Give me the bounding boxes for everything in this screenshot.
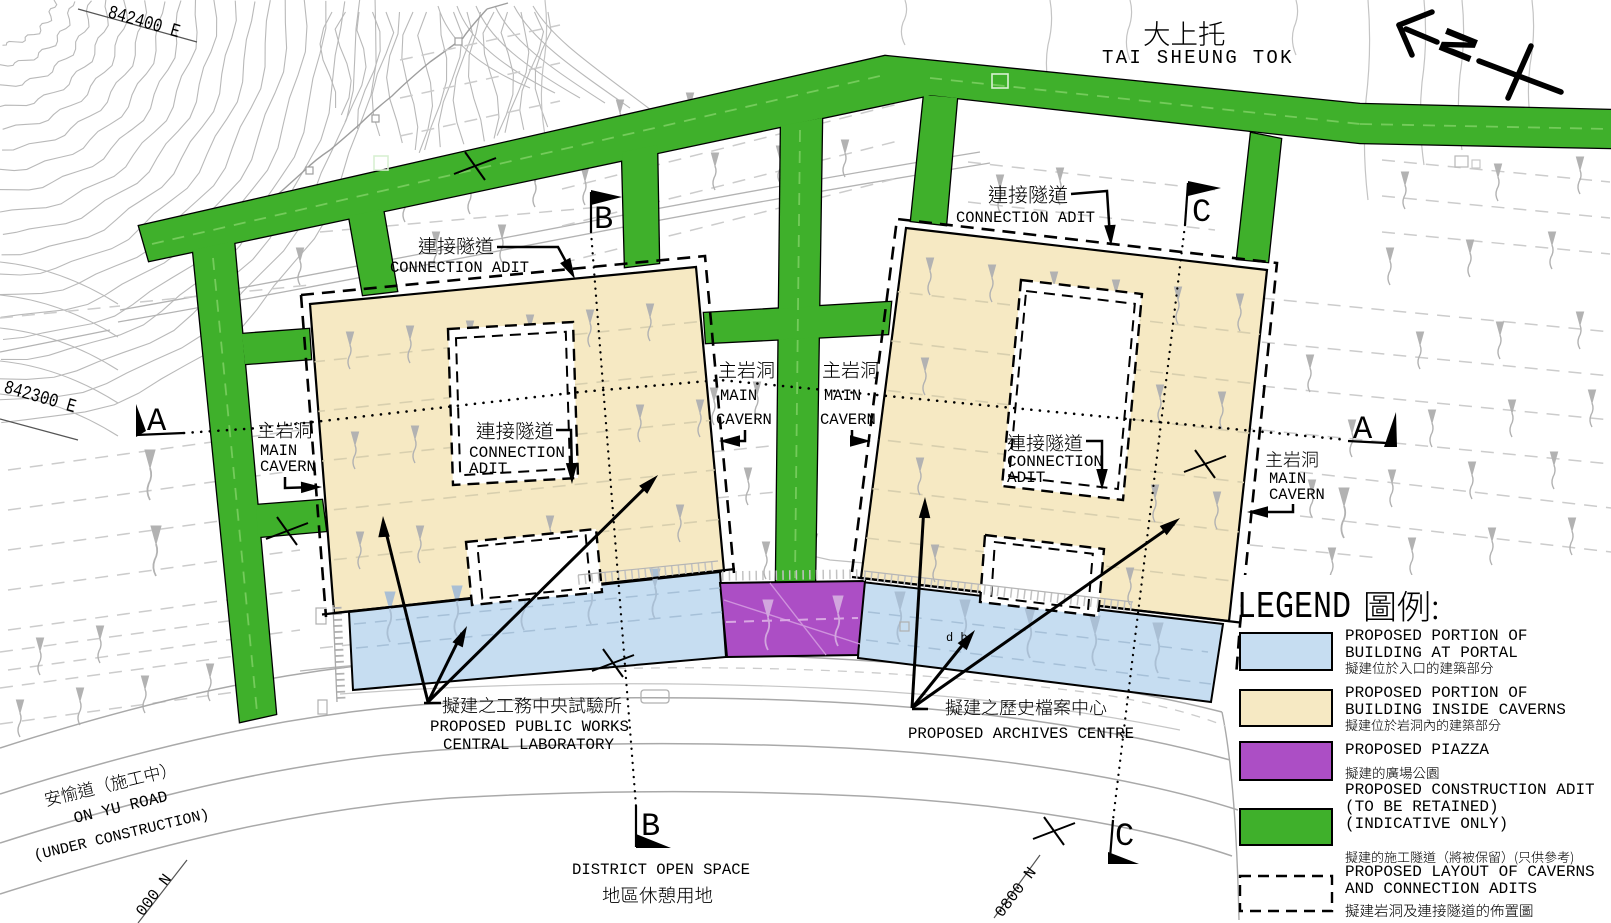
svg-text:PROPOSED CONSTRUCTION ADIT: PROPOSED CONSTRUCTION ADIT: [1345, 781, 1595, 799]
svg-text:A: A: [1353, 411, 1373, 448]
svg-text:CAVERN: CAVERN: [716, 411, 772, 429]
svg-text:PROPOSED PUBLIC WORKS: PROPOSED PUBLIC WORKS: [430, 718, 629, 736]
svg-text:CONNECTION ADIT: CONNECTION ADIT: [390, 259, 529, 277]
svg-text:C: C: [1192, 194, 1211, 231]
svg-text:CAVERN: CAVERN: [1269, 486, 1325, 504]
svg-text:LEGEND: LEGEND: [1237, 586, 1351, 629]
svg-text:MAIN: MAIN: [720, 387, 757, 405]
svg-text:ADIT: ADIT: [1007, 469, 1045, 487]
svg-text:CENTRAL LABORATORY: CENTRAL LABORATORY: [443, 736, 614, 754]
svg-text:PROPOSED PIAZZA: PROPOSED PIAZZA: [1345, 741, 1489, 759]
svg-text:B: B: [594, 201, 613, 238]
svg-text:BUILDING AT PORTAL: BUILDING AT PORTAL: [1345, 644, 1518, 662]
svg-text:(INDICATIVE ONLY): (INDICATIVE ONLY): [1345, 815, 1508, 833]
svg-text:BUILDING INSIDE CAVERNS: BUILDING INSIDE CAVERNS: [1345, 701, 1566, 719]
svg-text:PROPOSED ARCHIVES CENTRE: PROPOSED ARCHIVES CENTRE: [908, 725, 1134, 743]
svg-text:CAVERN: CAVERN: [820, 411, 876, 429]
svg-text:A: A: [147, 403, 167, 440]
svg-text:ADIT: ADIT: [469, 460, 507, 478]
svg-text:B: B: [641, 808, 660, 845]
svg-text:PROPOSED PORTION OF: PROPOSED PORTION OF: [1345, 684, 1527, 702]
svg-text:(TO BE RETAINED): (TO BE RETAINED): [1345, 798, 1499, 816]
svg-text:CONNECTION ADIT: CONNECTION ADIT: [956, 209, 1095, 227]
svg-text:C: C: [1115, 818, 1134, 855]
svg-text:MAIN: MAIN: [824, 387, 861, 405]
svg-text:PROPOSED LAYOUT OF CAVERNS: PROPOSED LAYOUT OF CAVERNS: [1345, 863, 1595, 881]
svg-text:PROPOSED PORTION OF: PROPOSED PORTION OF: [1345, 627, 1527, 645]
svg-text:AND CONNECTION ADITS: AND CONNECTION ADITS: [1345, 880, 1537, 898]
svg-text:DISTRICT OPEN SPACE: DISTRICT OPEN SPACE: [572, 861, 750, 879]
svg-text:TAI SHEUNG TOK: TAI SHEUNG TOK: [1102, 47, 1294, 69]
svg-text:CAVERN: CAVERN: [260, 458, 316, 476]
